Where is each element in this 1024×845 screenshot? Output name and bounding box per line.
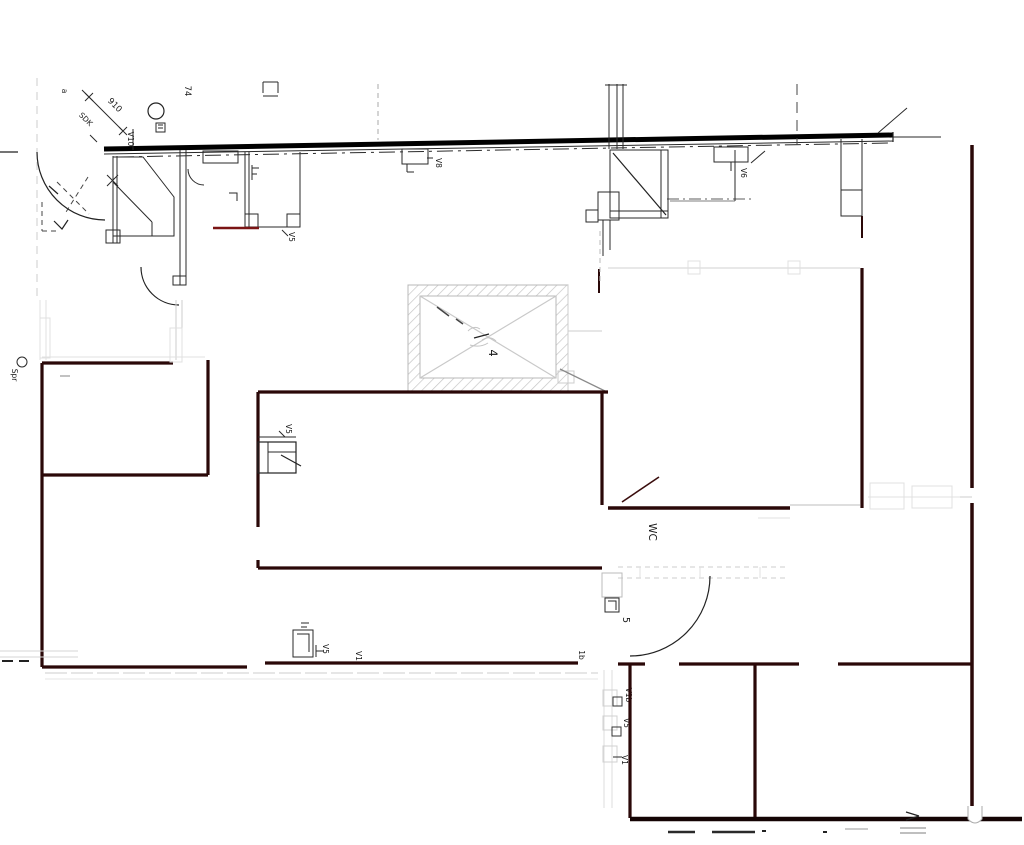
spr-circle	[17, 357, 27, 367]
far-right-block	[841, 139, 862, 238]
shaft-dark-dashes	[437, 307, 463, 324]
label-v10: V10	[126, 132, 135, 147]
door-arc-small	[188, 169, 204, 185]
sdk-leader	[90, 135, 97, 142]
label-shaft-4: 4	[486, 349, 500, 356]
label-v8: V8	[434, 158, 443, 168]
window-v8: V8	[378, 84, 443, 172]
window-strip-gray	[604, 670, 612, 808]
label-sdk: SDK	[77, 111, 95, 129]
label-a: a	[60, 89, 69, 94]
shaft: 4	[408, 231, 605, 391]
shaft-scribbles	[468, 327, 496, 346]
label-v1-bottom: V1	[354, 651, 363, 661]
jamb-square-left	[245, 214, 258, 227]
v8-marks	[407, 158, 433, 172]
ramp-diagonal	[613, 153, 666, 215]
below-wall-gray-2	[900, 828, 926, 833]
room-5: 5 1b	[577, 573, 710, 660]
label-v1-col: V1	[620, 755, 629, 765]
label-74: 74	[182, 86, 192, 97]
symbol-bracket	[263, 82, 278, 96]
shaft-right-gray	[568, 285, 602, 390]
gray-box-5	[602, 573, 622, 597]
central-room-walls	[258, 392, 608, 568]
left-room-walls	[42, 360, 208, 667]
label-v5-bottom: V5	[321, 644, 330, 654]
box-inner-5	[608, 601, 616, 610]
label-v5-center: V5	[284, 424, 293, 434]
window-box-v6	[714, 147, 748, 162]
bottom-right-walls	[618, 663, 973, 818]
right-exterior-wall	[949, 145, 972, 806]
bottom-left-wall: V5 V1	[0, 623, 598, 679]
strip-box-2	[603, 716, 617, 730]
floor-plan-canvas: V10 910 SDK a 74 V5 V8	[0, 0, 1024, 845]
closet-outline	[113, 157, 174, 236]
ghost-wall-2	[40, 300, 205, 360]
wc-area: WC	[608, 261, 960, 578]
floor-plan-page: V10 910 SDK a 74 V5 V8	[0, 0, 1024, 845]
block-box	[841, 190, 862, 216]
block-walls	[841, 139, 862, 238]
small-square	[586, 210, 598, 222]
entrance-area: V10 910 SDK a 74	[37, 78, 278, 302]
small-symbol-marks	[158, 125, 163, 128]
sink-inner-lines	[297, 623, 309, 652]
shaft-x-diagonals	[420, 296, 556, 378]
black-box-5	[605, 598, 619, 612]
label-1b: 1b	[577, 650, 586, 660]
entry-door-arc	[37, 152, 105, 220]
furniture-diagonal	[281, 455, 301, 466]
label-spr: Spr	[10, 369, 19, 383]
stub-lines-down	[603, 220, 610, 256]
left-room: Spr	[10, 300, 208, 667]
strip-box-1	[603, 690, 617, 706]
label-v6: V6	[739, 168, 748, 178]
central-furniture-box	[258, 442, 296, 473]
stair-room	[586, 84, 797, 293]
bottom-walls	[42, 663, 578, 667]
wc-fixtures-gray	[618, 567, 788, 578]
ghost-wall-1	[176, 300, 182, 360]
jamb-square-right	[287, 214, 300, 227]
label-v5-room-top: V5	[287, 232, 296, 242]
niche-box	[203, 151, 238, 163]
door-arc-2	[141, 267, 179, 305]
below-wall-dots	[762, 831, 827, 832]
ghost-box-2	[40, 318, 50, 358]
label-room-5: 5	[620, 617, 631, 623]
wc-door-diagonal	[622, 477, 659, 502]
top-exterior-wall	[0, 108, 941, 157]
wall-notch	[968, 806, 982, 823]
door-arc-5	[630, 576, 710, 656]
central-room: V5	[258, 392, 608, 568]
furniture-inner-lines	[258, 431, 296, 473]
label-wc: WC	[646, 523, 658, 541]
wc-fixture-ticks	[640, 518, 790, 578]
edge-gray-lines	[0, 651, 78, 657]
strip-box-3	[603, 746, 617, 762]
dim-text-910: 910	[105, 96, 124, 115]
partition-wall-double	[180, 150, 186, 285]
bottom-right-rooms: V1b V5 V1	[603, 663, 1022, 833]
upper-left-rooms: V5	[141, 150, 300, 305]
right-gray-box-1	[870, 483, 904, 509]
column-symbol-circle	[148, 103, 164, 119]
lower-box	[598, 192, 619, 220]
room2-walls	[245, 152, 300, 227]
wall-thick	[104, 135, 893, 149]
fixture-marks	[229, 165, 259, 201]
window-v6: V6	[714, 147, 765, 178]
